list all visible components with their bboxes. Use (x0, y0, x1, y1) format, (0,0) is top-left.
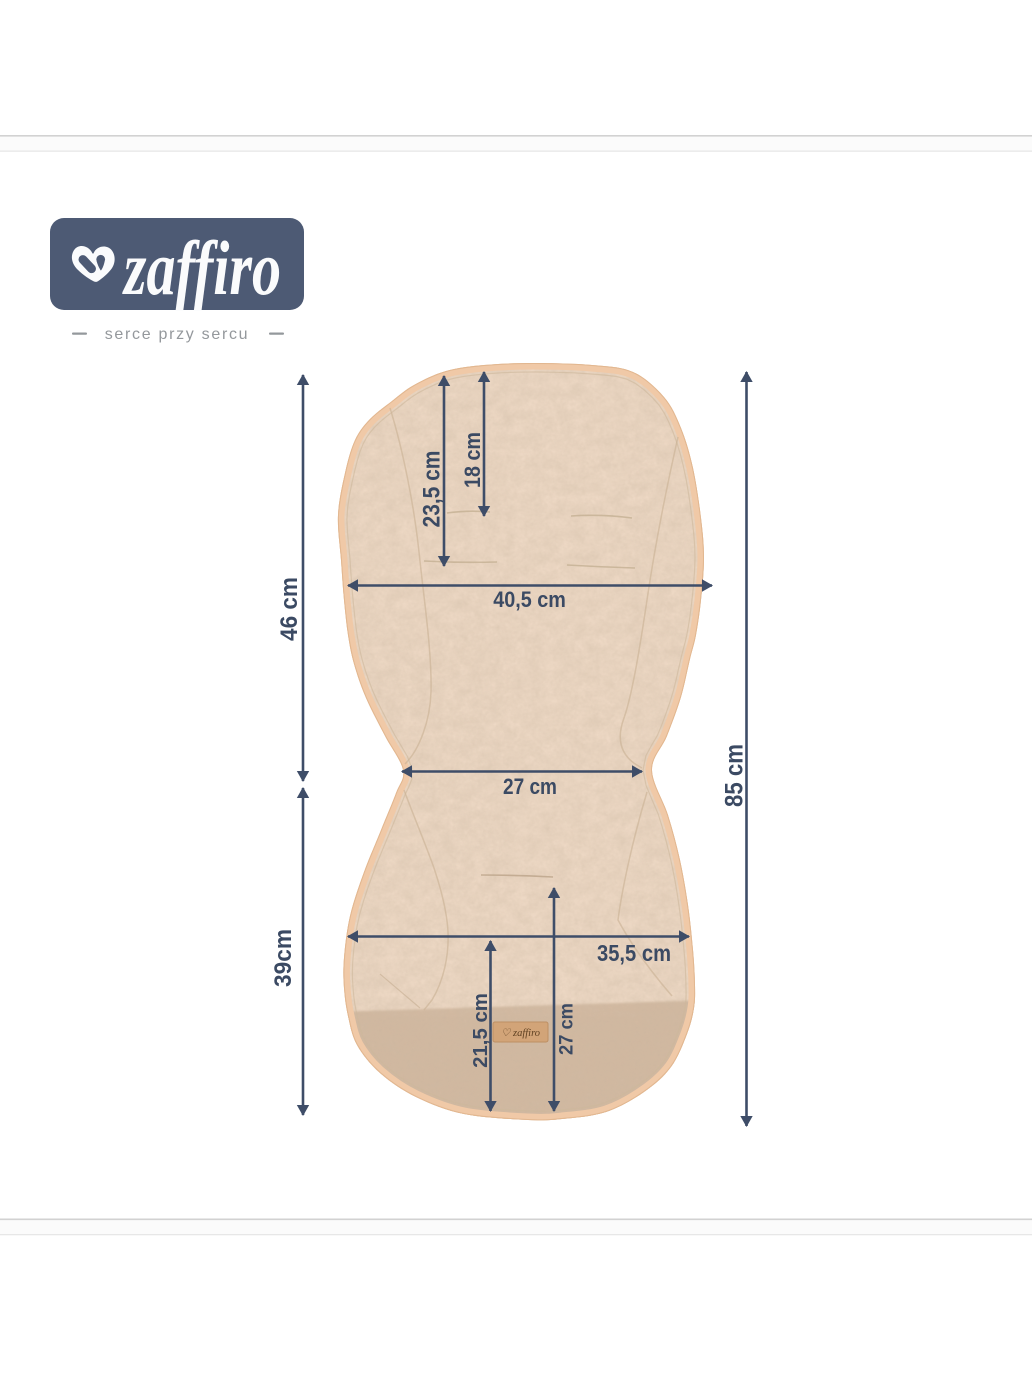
svg-text:21,5 cm: 21,5 cm (470, 993, 492, 1068)
svg-text:27 cm: 27 cm (555, 1003, 576, 1055)
svg-text:35,5 cm: 35,5 cm (597, 940, 671, 967)
svg-text:39cm: 39cm (269, 929, 296, 987)
svg-text:zaffiro: zaffiro (122, 225, 281, 311)
svg-text:18 cm: 18 cm (461, 432, 485, 488)
svg-text:♡ zaffiro: ♡ zaffiro (501, 1028, 540, 1039)
svg-text:85 cm: 85 cm (721, 744, 748, 807)
svg-text:27 cm: 27 cm (503, 775, 557, 800)
svg-text:23,5 cm: 23,5 cm (418, 451, 445, 528)
svg-text:serce przy sercu: serce przy sercu (105, 326, 250, 343)
svg-text:40,5 cm: 40,5 cm (493, 588, 566, 612)
svg-text:46 cm: 46 cm (275, 577, 302, 641)
